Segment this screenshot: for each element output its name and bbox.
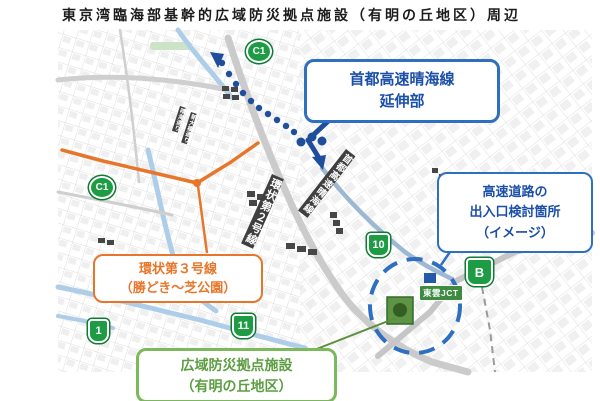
route-marker-1: 1	[88, 319, 109, 343]
map-page: 東京湾臨海部基幹的広域防災拠点施設（有明の丘地区）周辺	[0, 0, 600, 401]
callout-exit-study: 高速道路の 出入口検討箇所 （イメージ）	[437, 172, 593, 253]
route-marker-c1-top: C1	[246, 40, 272, 63]
callout-ring3-line2: （勝どき～芝公園）	[120, 279, 237, 298]
route-marker-10: 10	[367, 233, 390, 257]
callout-exit-line1: 高速道路の	[482, 182, 547, 202]
route-marker-11: 11	[232, 314, 255, 338]
callout-harumi-line1: 首都高速晴海線	[349, 69, 454, 92]
map-label-shinonome-jct: 東雲JCT	[419, 285, 463, 301]
callout-harumi-extension: 首都高速晴海線 延伸部	[304, 59, 500, 123]
callout-exit-line2: 出入口検討箇所	[469, 202, 560, 222]
route-marker-b: B	[466, 258, 493, 286]
callout-exit-line3: （イメージ）	[476, 223, 554, 243]
callout-base-line2: （有明の丘地区）	[181, 376, 293, 396]
callout-base-line1: 広域防災拠点施設	[181, 355, 293, 375]
route-marker-c1-left: C1	[89, 176, 115, 199]
callout-ring-road-3: 環状第３号線 （勝どき～芝公園）	[93, 254, 263, 303]
page-title: 東京湾臨海部基幹的広域防災拠点施設（有明の丘地区）周辺	[62, 5, 521, 25]
callout-ring3-line1: 環状第３号線	[139, 260, 217, 279]
callout-disaster-base: 広域防災拠点施設 （有明の丘地区）	[136, 348, 337, 401]
callout-harumi-line2: 延伸部	[379, 91, 424, 114]
jct-structure-block	[424, 273, 436, 283]
